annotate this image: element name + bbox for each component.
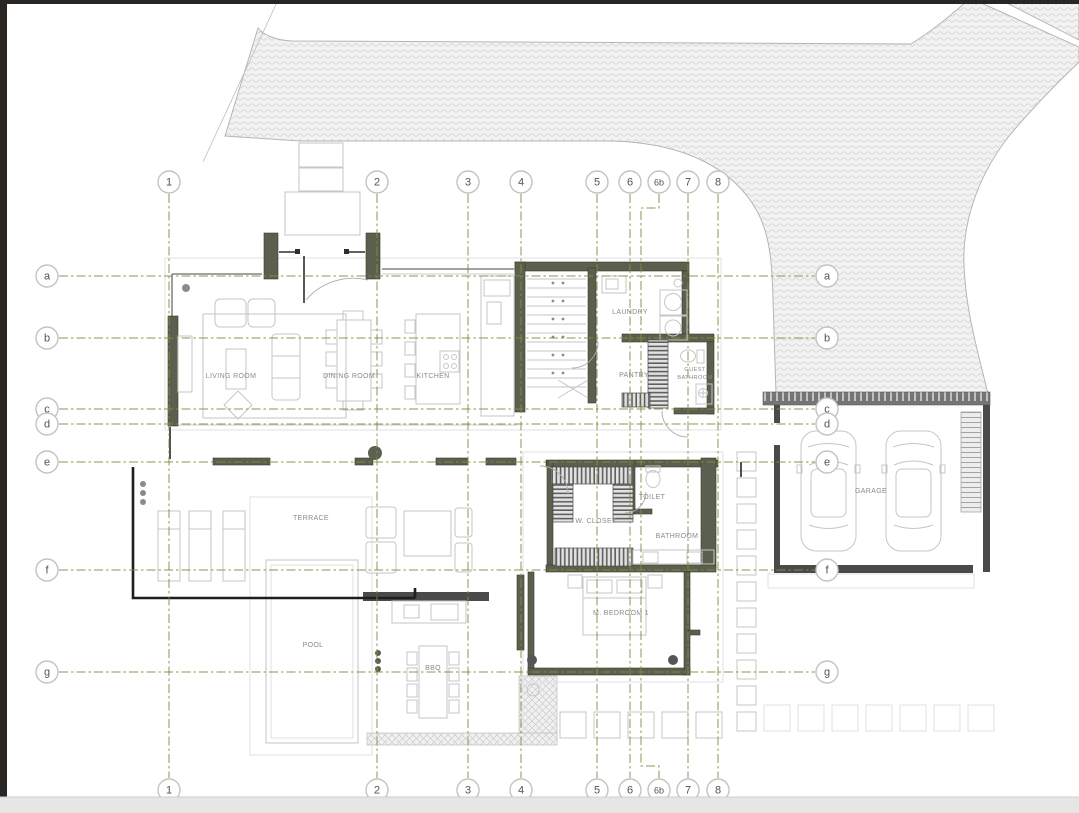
grid-bubble-col: 6 (619, 171, 641, 193)
page-edge-bottom (0, 797, 1079, 813)
bedroom-furniture (568, 575, 662, 635)
outdoor-seat (366, 507, 396, 538)
svg-text:5: 5 (594, 177, 600, 189)
entry-step (299, 168, 343, 191)
garage-wall (983, 405, 990, 572)
room-label-dining: DINING ROOM (323, 373, 375, 380)
grid-bubble-col: 5 (586, 171, 608, 193)
garage-wall (774, 445, 780, 567)
nightstand (568, 575, 582, 588)
grid-bubble-row: a (36, 265, 58, 287)
kitchen-furniture (405, 276, 514, 416)
outdoor-dining-table (419, 646, 447, 718)
svg-text:a: a (44, 271, 51, 283)
armchair (215, 299, 246, 327)
svg-text:3: 3 (465, 177, 471, 189)
svg-text:6: 6 (627, 177, 633, 189)
sink-icon (687, 552, 702, 563)
page-edge-top (0, 0, 1079, 4)
pool-inner (271, 565, 353, 738)
entry-step (299, 143, 343, 167)
grid-bubble-row: e (816, 451, 838, 473)
svg-text:2: 2 (374, 785, 380, 797)
room-label-living: LIVING ROOM (206, 373, 257, 380)
grid-bubble-col: 3 (457, 171, 479, 193)
room-label-terrace: TERRACE (293, 515, 329, 522)
room-label-bbq: BBQ (425, 665, 441, 672)
svg-text:a: a (824, 271, 831, 283)
grid-bubble-col: 6b (648, 171, 670, 193)
grid-bubble-col: 4 (510, 171, 532, 193)
pool (266, 560, 358, 743)
bed (583, 577, 646, 635)
stair-wall (588, 268, 596, 403)
room-label-guest-bathroom: GUEST (684, 367, 706, 373)
stove (440, 351, 459, 372)
toilet-partition (635, 509, 652, 514)
grid-bubble-col: 2 (366, 171, 388, 193)
toilet-icon (646, 471, 660, 488)
page-edge-left (0, 0, 7, 813)
grid-bubble-row: a (816, 265, 838, 287)
room-label-laundry: LAUNDRY (612, 309, 648, 316)
laundry-sink (674, 279, 682, 287)
grid-bubble-row: g (36, 661, 58, 683)
bbq-wall (363, 592, 489, 601)
dining-room-furniture (326, 311, 382, 410)
grid-bubble-row: b (36, 327, 58, 349)
entry-porch (285, 192, 360, 235)
floor-plan-canvas: 1 2 3 4 5 6 6b 7 8 1 2 3 4 5 6 6b 7 8 a … (0, 0, 1079, 813)
armchair (248, 299, 275, 327)
svg-text:6b: 6b (654, 177, 664, 187)
grid-bubble-col: 8 (707, 171, 729, 193)
svg-text:e: e (44, 457, 50, 469)
svg-text:8: 8 (715, 785, 721, 797)
svg-text:4: 4 (518, 785, 524, 797)
room-label-guest-bathroom: BATHROOM (677, 375, 712, 381)
coffee-table (226, 349, 246, 389)
svg-text:4: 4 (518, 177, 524, 189)
outdoor-seat (366, 542, 396, 573)
svg-text:6: 6 (627, 785, 633, 797)
garage-wall (774, 405, 780, 423)
svg-text:d: d (44, 419, 50, 431)
nightstand (648, 575, 662, 588)
grid-bubble-row: f (816, 559, 838, 581)
garage-door (961, 412, 981, 512)
car (882, 431, 945, 551)
grid-bubble-row: d (36, 413, 58, 435)
room-label-garage: GARAGE (855, 488, 887, 495)
stepping-stones-row (560, 705, 994, 738)
kitchen-sink (487, 302, 501, 324)
dining-table (337, 320, 371, 401)
gravel-strip-horizontal (367, 733, 557, 745)
svg-text:1: 1 (166, 785, 172, 797)
garage-canopy-outline (768, 574, 974, 588)
outdoor-table (404, 511, 451, 556)
svg-text:7: 7 (685, 177, 691, 189)
floor-plan-page: 1 2 3 4 5 6 6b 7 8 1 2 3 4 5 6 6b 7 8 a … (0, 0, 1079, 813)
grid-bubble-col: 7 (677, 171, 699, 193)
svg-text:1: 1 (166, 177, 172, 189)
room-label-pool: POOL (303, 642, 324, 649)
road-edge-wall (763, 392, 990, 405)
stepping-stones-column (737, 452, 756, 731)
garage-wall (774, 565, 973, 573)
sink-icon (643, 552, 658, 563)
kitchen-counter (481, 276, 514, 416)
terrace-boundary (133, 467, 415, 598)
car (797, 431, 860, 551)
room-label-kitchen: KITCHEN (416, 373, 449, 380)
bbq-furniture (392, 601, 466, 718)
tv-cabinet (178, 336, 192, 392)
grid-bubble-row: e (36, 451, 58, 473)
room-label-bathroom: BATHROOM (656, 533, 699, 540)
entry-pillar (366, 233, 380, 279)
laundry-fixtures (602, 276, 687, 340)
grid-bubble-row: g (816, 661, 838, 683)
svg-text:g: g (824, 667, 830, 679)
svg-text:6b: 6b (654, 785, 664, 795)
closet-wardrobes (551, 467, 633, 566)
pool-deck (250, 497, 372, 755)
room-label-toilet: TOILET (639, 494, 666, 501)
outdoor-seat (455, 543, 472, 572)
pillow (587, 580, 612, 593)
svg-text:8: 8 (715, 177, 721, 189)
wall (684, 572, 690, 675)
svg-text:e: e (824, 457, 830, 469)
room-label-bedroom: M. BEDROOM 1 (593, 610, 649, 617)
svg-text:g: g (44, 667, 50, 679)
svg-text:5: 5 (594, 785, 600, 797)
living-room-furniture (178, 299, 346, 419)
bbq-sink (404, 605, 419, 618)
grid-bubble-row: b (816, 327, 838, 349)
grid-bubble-row: d (816, 413, 838, 435)
svg-text:b: b (824, 333, 830, 345)
stair-wall (515, 262, 525, 412)
entry-pillar (264, 233, 278, 279)
wall (688, 630, 700, 635)
room-label-closet: W. CLOSET (575, 518, 617, 525)
grid-bubble-row: f (36, 559, 58, 581)
svg-text:2: 2 (374, 177, 380, 189)
bbq-grill (431, 604, 458, 620)
wall (515, 262, 689, 271)
svg-text:3: 3 (465, 785, 471, 797)
outdoor-seat (455, 508, 472, 537)
grid-bubble-col: 1 (158, 171, 180, 193)
side-table (224, 391, 252, 419)
svg-text:d: d (824, 419, 830, 431)
room-label-pantry: PANTRY (619, 372, 649, 379)
svg-text:b: b (44, 333, 50, 345)
sofa (272, 334, 300, 400)
rug (203, 314, 346, 418)
svg-text:7: 7 (685, 785, 691, 797)
